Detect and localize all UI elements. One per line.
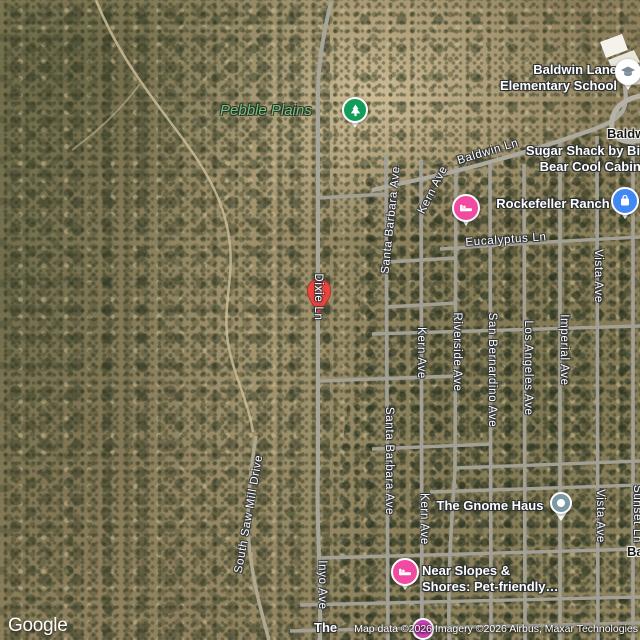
street-label-sunset-ln: Sunset Ln xyxy=(631,485,640,543)
street-label-eucalyptus-ln: Eucalyptus Ln xyxy=(465,231,547,249)
street-label-vista-ave-n: Vista Ave xyxy=(592,249,604,303)
dirt-trail-branch xyxy=(72,84,140,150)
street-label-riverside-ave: Riverside Ave xyxy=(451,312,463,391)
graduation-cap-icon xyxy=(615,59,640,85)
bed-icon xyxy=(391,558,419,586)
road-dixie-inyo xyxy=(318,2,331,640)
poi-label-line: Shores: Pet-friendly… xyxy=(422,579,559,595)
street-label-santa-barbara-ave-s: Santa Barbara Ave xyxy=(383,407,395,515)
dirt-trail xyxy=(96,0,253,432)
poi-label-sugar-shack[interactable]: Sugar Shack by Big Bear Cool Cabins xyxy=(526,143,640,175)
street-label-baldwin-ln: Baldwin Ln xyxy=(456,137,520,167)
poi-label-elementary-school[interactable]: Baldwin Lane Elementary School xyxy=(500,62,617,94)
street-label-inyo-ave: Inyo Ave xyxy=(316,560,328,610)
poi-label-near-slopes[interactable]: Near Slopes & Shores: Pet-friendly… xyxy=(422,563,559,595)
shopping-bag-icon xyxy=(611,187,639,215)
map-attribution: Map data ©2026 Imagery ©2026 Airbus, Max… xyxy=(354,623,638,635)
street-label-kern-ave-s: Kern Ave xyxy=(418,493,430,545)
street-label-santa-barbara-ave-n: Santa Barbara Ave xyxy=(379,166,402,275)
clipped-place-label: Ba xyxy=(627,544,640,559)
satellite-map-canvas[interactable]: Pebble Plains Baldwin Lane Elementary Sc… xyxy=(0,0,640,640)
poi-label-line: Bear Cool Cabins xyxy=(526,159,640,175)
street-label-vista-ave-s: Vista Ave xyxy=(594,489,606,543)
poi-label-gnome-haus[interactable]: The Gnome Haus xyxy=(437,498,544,514)
tree-icon xyxy=(342,97,368,123)
street-label-kern-ave-mid: Kern Ave xyxy=(415,327,427,379)
clipped-place-label: Baldw xyxy=(607,126,640,141)
poi-label-partial[interactable]: The xyxy=(314,620,337,636)
street-label-imperial-ave: Imperial Ave xyxy=(558,314,570,385)
street-label-dixie-ln: Dixie Ln xyxy=(312,273,324,320)
poi-label-rockefeller-ranch[interactable]: Rockefeller Ranch xyxy=(496,196,609,212)
street-label-kern-ave-n: Kern Ave xyxy=(416,164,450,216)
park-label[interactable]: Pebble Plains xyxy=(220,102,312,119)
street-label-south-saw-mill-drive: South Saw Mill Drive xyxy=(233,454,266,574)
poi-label-line: Near Slopes & xyxy=(422,563,559,579)
pin-pointer xyxy=(555,512,567,527)
bed-icon xyxy=(452,194,480,222)
google-logo[interactable]: Google xyxy=(8,615,67,637)
street-label-los-angeles-ave: Los Angeles Ave xyxy=(522,320,534,415)
poi-label-line: Elementary School xyxy=(500,78,617,94)
poi-label-line: Sugar Shack by Big xyxy=(526,143,640,159)
poi-label-line: Baldwin Lane xyxy=(500,62,617,78)
dot-icon xyxy=(550,492,572,514)
street-label-san-bernardino-ave: San Bernardino Ave xyxy=(486,313,498,428)
hillside-texture xyxy=(0,0,330,640)
